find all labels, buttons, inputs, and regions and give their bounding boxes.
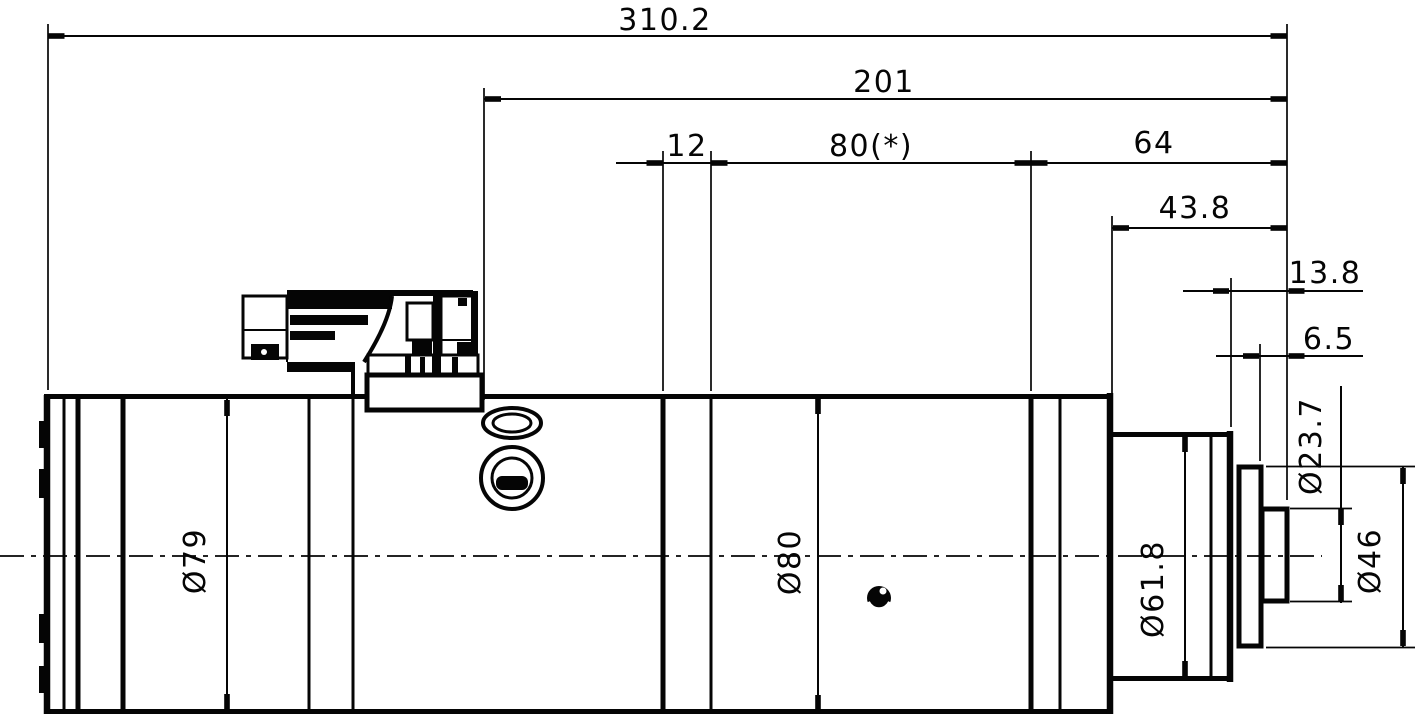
arrow-tick [1032,160,1048,166]
arrow-tick [1400,468,1406,484]
socket-pin [452,357,458,373]
arrow-tick [712,160,728,166]
dim-label-mid-section: 80(*) [829,129,913,164]
socket-pin [420,357,425,373]
arrow-tick [49,33,65,39]
arrow-tick [1271,225,1287,231]
dim-label-nose: Ø61.8 [1136,540,1171,638]
dim-label-front-flange: Ø46 [1353,528,1388,594]
arrow-tick [485,96,501,102]
arrow-tick [224,400,230,416]
backshell-foot-hole [261,349,267,355]
arrow-tick [1338,509,1344,525]
arrow-tick [1271,96,1287,102]
arrow-tick [224,694,230,710]
cable-clamp-block [407,303,433,340]
contact-stripe [287,362,355,372]
dim-label-nose-length: 43.8 [1159,191,1232,226]
dim-nose-length: 43.8 [1112,191,1287,231]
set-screw [867,586,891,610]
arrow-tick [815,398,821,414]
dim-label-front-length: 201 [853,65,915,100]
contact-stripe [287,296,392,309]
coolant-port-round [481,447,543,509]
rear-cap [39,395,123,714]
rear-face-lug [39,614,48,643]
arrow-tick [1400,630,1406,646]
oval-port-inner [493,414,531,432]
arrow-tick [1271,33,1287,39]
arrow-tick [1213,288,1229,294]
gland-detail [458,298,467,306]
dim-front-flange-diameter: Ø46 [1353,466,1406,648]
dim-label-groove: 12 [666,129,707,164]
arrow-tick [1113,225,1129,231]
set-screw-dot [880,588,887,595]
drawing-canvas: 310.2 201 12 80(*) 64 43.8 13.8 6.5 [0,0,1417,719]
dim-main-body-diameter: Ø80 [773,397,821,712]
dim-label-overall: 310.2 [618,3,711,38]
round-port-slot [496,476,528,490]
arrow-tick [1182,436,1188,452]
dim-label-rear-body: Ø79 [178,528,213,594]
dim-shaft-tip-diameter: Ø23.7 [1294,386,1344,603]
dim-label-front-section: 64 [1133,126,1174,161]
dim-label-tip-to-shoulder: 13.8 [1289,256,1362,291]
mounting-boss [367,375,482,410]
rear-face-lug [39,421,48,448]
clamp-screw [412,341,432,355]
connector-assembly [243,290,482,410]
arrow-tick [1243,353,1259,359]
arrow-tick [647,160,663,166]
technical-drawing: 310.2 201 12 80(*) 64 43.8 13.8 6.5 [0,0,1417,719]
rear-face-lug [39,666,48,693]
coolant-port-oval [483,408,541,438]
arrow-tick [1271,160,1287,166]
contact-stripe [290,331,335,340]
socket-pin [405,355,411,375]
arrow-tick [815,695,821,711]
dim-tip-protrusion: 6.5 [1216,322,1363,359]
dim-rear-body-diameter: Ø79 [178,399,230,711]
contact-stripe [290,315,368,325]
arrow-tick [1182,661,1188,677]
rear-face-lug [39,469,48,498]
dim-chain-row: 12 80(*) 64 [616,126,1287,166]
arrow-tick [1338,585,1344,601]
gland-right-edge [471,291,478,355]
dim-label-shaft-tip: Ø23.7 [1294,397,1329,495]
dim-label-main-body: Ø80 [773,529,808,595]
dim-tip-to-shoulder: 13.8 [1183,256,1363,294]
shaft-tip [1262,509,1287,601]
dim-label-tip-protrusion: 6.5 [1303,322,1355,357]
socket-pin [432,355,441,375]
dim-front-length: 201 [484,65,1287,102]
gland-screw [457,342,472,355]
dim-overall-length: 310.2 [48,3,1287,39]
arrow-tick [1015,160,1031,166]
